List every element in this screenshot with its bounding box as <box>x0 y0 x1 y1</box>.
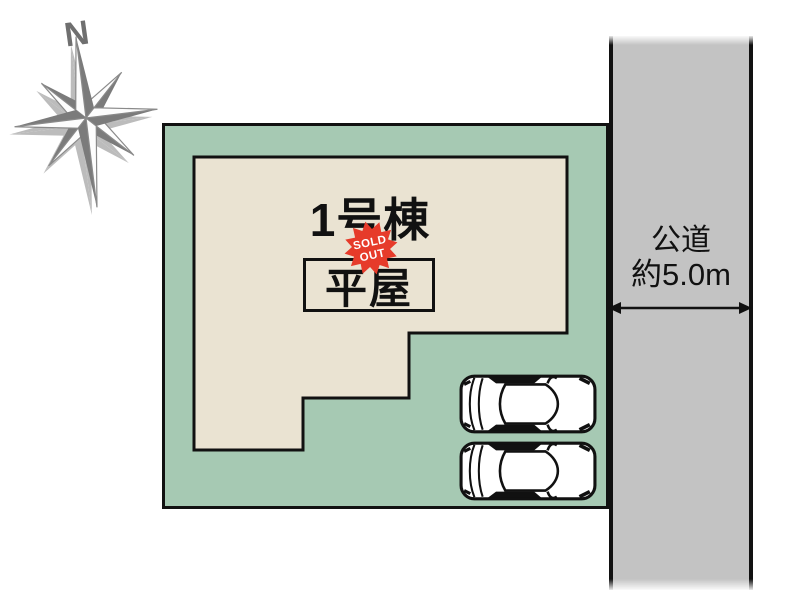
road-width-arrow-icon <box>606 297 754 319</box>
sold-out-badge: SOLD OUT <box>340 219 404 281</box>
north-label: N <box>62 13 92 54</box>
parking-car-1-icon <box>459 374 597 434</box>
road-name-label: 公道 <box>609 224 753 258</box>
compass-rose-icon: N <box>6 6 176 221</box>
site-plan: N 1号棟 平屋 SOLD OUT <box>0 0 800 600</box>
road-labels: 公道 約5.0m <box>609 224 753 292</box>
road-width-label: 約5.0m <box>609 258 753 292</box>
parking-car-2-icon <box>459 441 597 501</box>
